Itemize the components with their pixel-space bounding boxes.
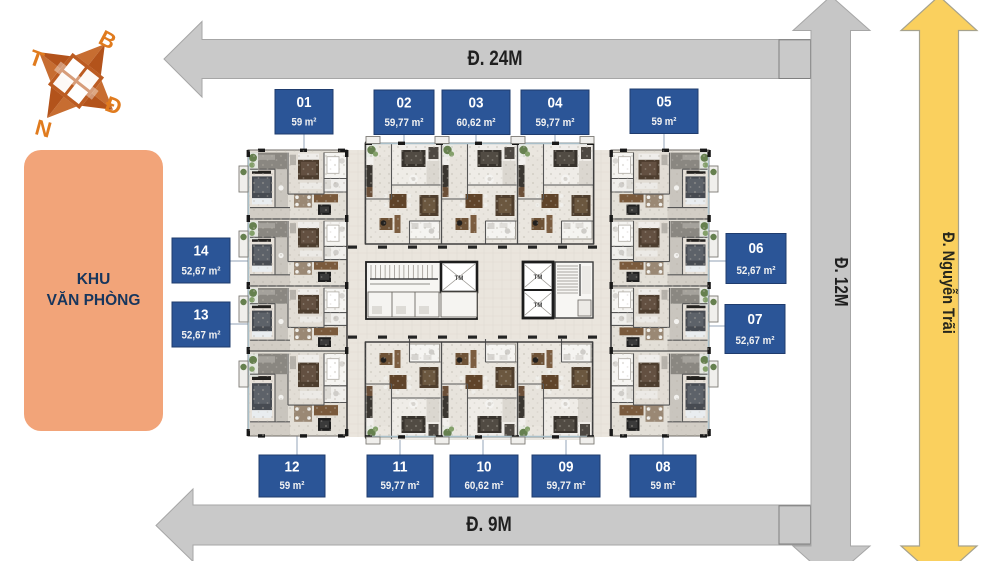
svg-text:52,67 m²: 52,67 m² (182, 329, 221, 341)
svg-text:59 m²: 59 m² (292, 117, 317, 129)
svg-text:Đ. 12M: Đ. 12M (831, 258, 852, 307)
svg-text:03: 03 (469, 95, 484, 112)
svg-text:59 m²: 59 m² (280, 480, 305, 492)
svg-text:59,77 m²: 59,77 m² (381, 480, 420, 492)
svg-text:VĂN PHÒNG: VĂN PHÒNG (47, 291, 141, 309)
svg-text:13: 13 (194, 307, 209, 324)
svg-text:59,77 m²: 59,77 m² (536, 117, 575, 129)
svg-text:Đ. 9M: Đ. 9M (466, 513, 512, 536)
svg-text:KHU: KHU (77, 271, 111, 288)
svg-text:59 m²: 59 m² (652, 116, 677, 128)
svg-text:TM: TM (455, 276, 464, 282)
svg-text:02: 02 (397, 95, 412, 112)
svg-text:11: 11 (393, 459, 408, 476)
svg-text:60,62 m²: 60,62 m² (457, 117, 496, 129)
svg-text:01: 01 (297, 94, 312, 111)
svg-text:59,77 m²: 59,77 m² (547, 480, 586, 492)
svg-text:14: 14 (194, 243, 210, 260)
svg-text:59,77 m²: 59,77 m² (385, 117, 424, 129)
svg-text:52,67 m²: 52,67 m² (736, 335, 775, 347)
svg-text:Đ. 24M: Đ. 24M (467, 47, 522, 70)
svg-text:59 m²: 59 m² (651, 480, 676, 492)
svg-text:10: 10 (477, 459, 492, 476)
svg-text:60,62 m²: 60,62 m² (465, 480, 504, 492)
svg-text:12: 12 (285, 459, 300, 476)
svg-text:52,67 m²: 52,67 m² (182, 265, 221, 277)
svg-text:08: 08 (656, 459, 671, 476)
svg-text:04: 04 (548, 95, 564, 112)
svg-text:TM: TM (534, 303, 543, 309)
svg-text:TM: TM (534, 275, 543, 281)
svg-text:07: 07 (748, 311, 763, 328)
svg-text:N: N (32, 114, 54, 142)
svg-text:09: 09 (559, 459, 574, 476)
svg-text:Đ. Nguyễn Trãi: Đ. Nguyễn Trãi (939, 232, 959, 334)
svg-text:06: 06 (749, 240, 764, 257)
svg-text:52,67 m²: 52,67 m² (737, 265, 776, 277)
svg-text:05: 05 (657, 94, 672, 111)
